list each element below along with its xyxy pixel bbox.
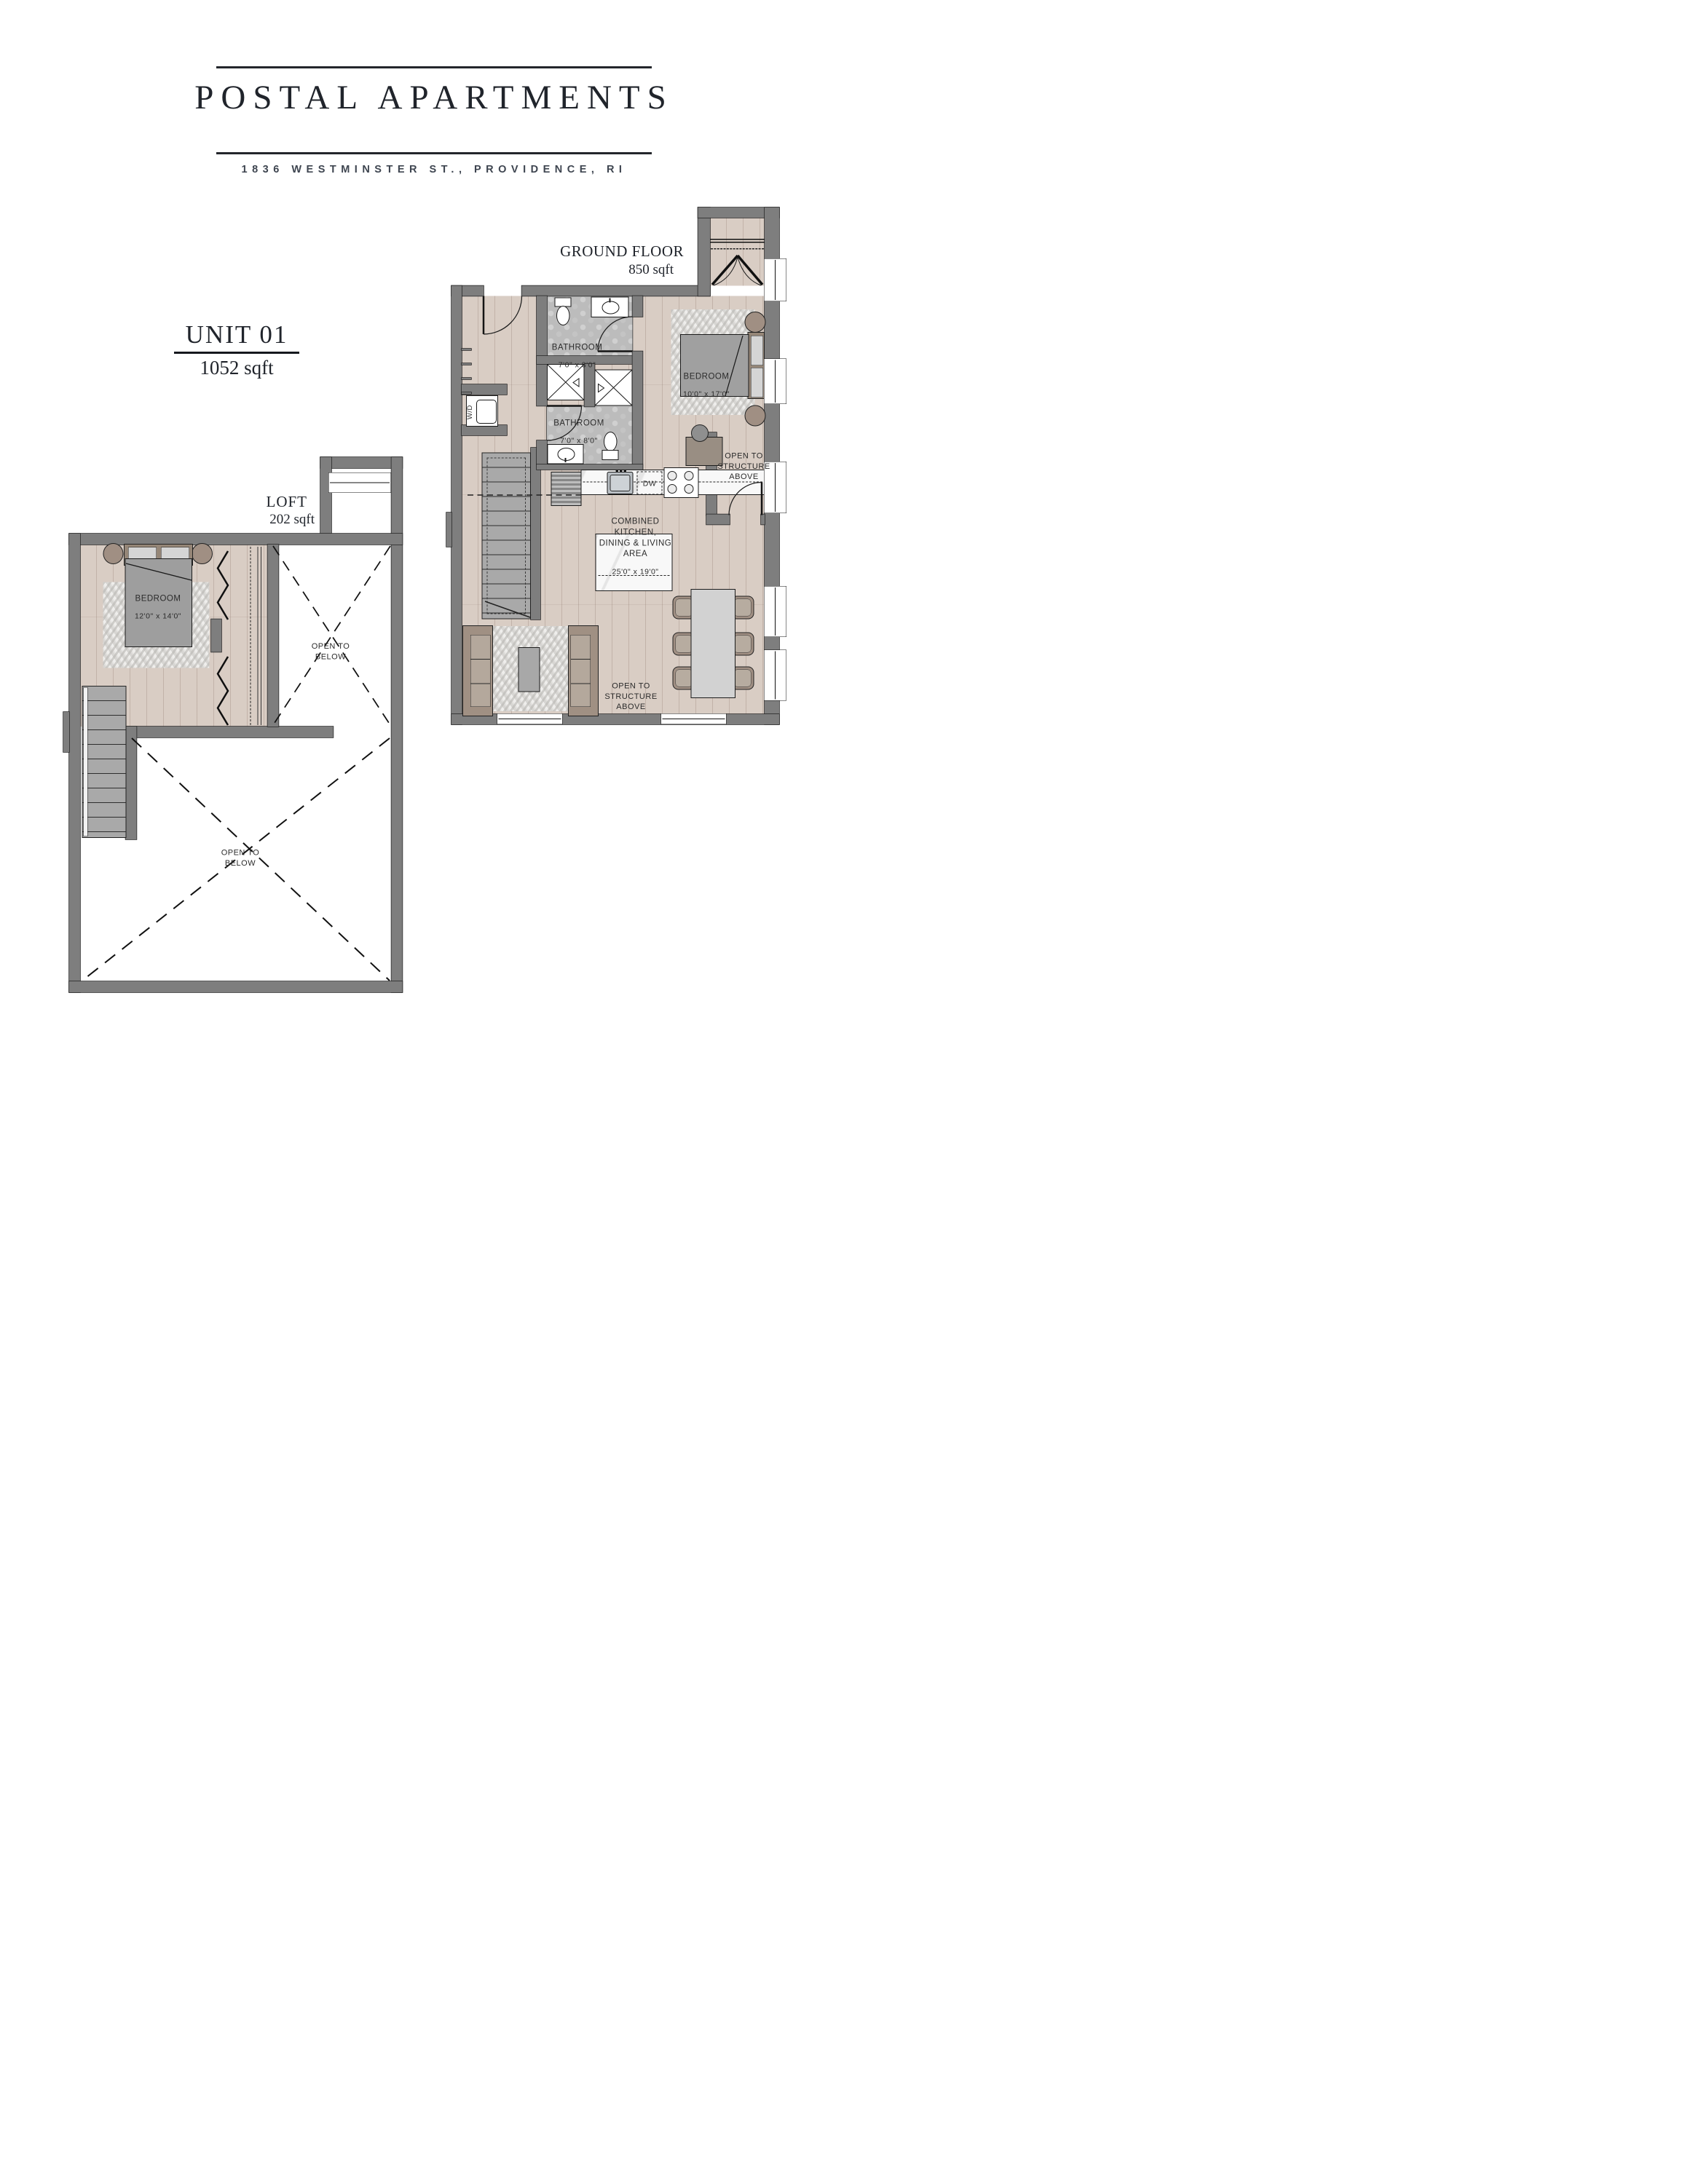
bifold-door bbox=[218, 657, 228, 725]
room-name: BEDROOM bbox=[135, 593, 181, 603]
bifold-door bbox=[218, 551, 228, 620]
room-dims: 12'0" x 14'0" bbox=[135, 612, 181, 621]
shower-head-marker bbox=[573, 379, 579, 387]
shower-head-marker bbox=[599, 384, 604, 392]
header-rule-top bbox=[216, 66, 652, 68]
entry-door-arc bbox=[484, 296, 522, 335]
page-title: POSTAL APARTMENTS bbox=[179, 78, 689, 117]
ground-bedroom-label: BEDROOM 10'0" x 17'0" bbox=[670, 363, 743, 399]
open-structure-label: OPEN TO STRUCTURE ABOVE bbox=[600, 681, 662, 712]
bed-fold-line bbox=[126, 563, 192, 580]
bathroom1-label: BATHROOM 7'0" x 8'0" bbox=[545, 334, 610, 370]
room-dims: 10'0" x 17'0" bbox=[683, 390, 730, 399]
unit-label: UNIT 01 1052 sqft bbox=[138, 320, 335, 379]
room-dims: 7'0" x 8'0" bbox=[560, 437, 597, 446]
open-below-x bbox=[273, 546, 390, 725]
unit-underline bbox=[174, 352, 299, 354]
unit-name: UNIT 01 bbox=[138, 320, 335, 349]
washer-dryer-label: W/D bbox=[465, 403, 474, 422]
open-structure-label: OPEN TO STRUCTURE ABOVE bbox=[713, 451, 775, 482]
unit-area: 1052 sqft bbox=[138, 357, 335, 379]
entry-double-door-leaf bbox=[712, 256, 738, 285]
room-name: BATHROOM bbox=[553, 418, 604, 427]
header-rule-bottom bbox=[216, 152, 652, 154]
wall-bump bbox=[446, 513, 451, 547]
dishwasher-label: DW bbox=[638, 479, 662, 489]
room-name: BEDROOM bbox=[684, 371, 730, 381]
loft-plan: BEDROOM 12'0" x 14'0" OPEN TO BELOW OPEN… bbox=[69, 457, 403, 992]
bedroom-door-arc bbox=[729, 483, 762, 515]
kitchen-label: COMBINED KITCHEN, DINING & LIVING AREA 2… bbox=[590, 508, 681, 577]
open-below-label: OPEN TO BELOW bbox=[210, 847, 272, 869]
room-name: BATHROOM bbox=[552, 342, 603, 352]
header-address: 1836 WESTMINSTER ST., PROVIDENCE, RI bbox=[179, 164, 689, 175]
stair-diagonal bbox=[485, 601, 530, 617]
loft-overlay bbox=[69, 457, 403, 992]
bathroom2-label: BATHROOM 7'0" x 8'0" bbox=[544, 410, 614, 446]
wall-bump bbox=[63, 712, 69, 752]
entry-double-door-leaf bbox=[738, 256, 762, 285]
room-name: COMBINED KITCHEN, DINING & LIVING AREA bbox=[599, 516, 672, 558]
floorplan-sheet: POSTAL APARTMENTS 1836 WESTMINSTER ST., … bbox=[0, 0, 844, 1092]
room-dims: 7'0" x 8'0" bbox=[559, 361, 596, 370]
room-dims: 25'0" x 19'0" bbox=[612, 568, 658, 577]
ground-floor-plan: BATHROOM 7'0" x 8'0" BATHROOM 7'0" x 8'0… bbox=[451, 207, 801, 724]
open-below-label: OPEN TO BELOW bbox=[300, 641, 362, 662]
loft-bedroom-label: BEDROOM 12'0" x 14'0" bbox=[125, 585, 191, 621]
